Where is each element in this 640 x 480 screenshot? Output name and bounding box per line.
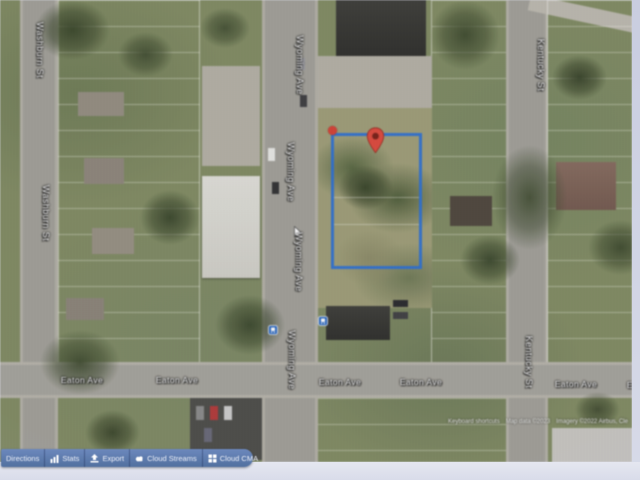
screen-photo: Washburn St Washburn St Wyoming Ave Wyom… [0,0,640,480]
bottom-toolbar: Directions Stats Export Cloud Streams Cl… [1,449,253,467]
street-label: Eaton Ave [400,377,442,387]
street-label: Wyoming Ave [294,232,304,291]
street-label: Washburn St [41,185,51,241]
street-label: Eaton Ave [156,375,198,385]
street-label: Washburn St [35,22,45,78]
cloud-streams-button[interactable]: Cloud Streams [129,449,202,467]
export-icon [90,454,99,463]
map-attribution: Keyboard shortcuts Map data ©2023 Imager… [448,419,632,425]
street-label: Eaton Ave [555,379,597,389]
location-pin-icon[interactable] [366,127,385,154]
transit-stop-icon[interactable] [318,313,328,323]
stats-button[interactable]: Stats [44,449,84,467]
street-label: Wyoming Ave [287,330,297,389]
cloud-cma-button[interactable]: Cloud CMA [202,449,263,467]
street-label: Wyoming Ave [286,142,296,201]
street-label: Eaton Ave [61,375,103,385]
cloud-streams-icon [135,454,144,463]
lot-line [334,197,419,198]
imagery-credit: Imagery ©2022 Airbus, Cle [556,419,628,425]
lot-line [334,224,419,225]
parcel-vertex-dot[interactable] [328,126,337,135]
directions-button-label: Directions [6,454,39,463]
street-label: Kentucky St [536,39,546,91]
street-label: Kentucky St [524,336,534,388]
street-label: Wyoming Ave [295,35,305,94]
cloud-streams-button-label: Cloud Streams [147,454,197,463]
street-label: Eaton Ave [319,377,361,387]
transit-stop-icon[interactable] [268,322,278,332]
screen-edge [632,0,640,480]
directions-button[interactable]: Directions [1,449,44,467]
export-button[interactable]: Export [84,449,129,467]
cloud-cma-icon [208,454,217,463]
map-data-link[interactable]: Map data ©2023 [506,419,550,425]
cloud-cma-button-label: Cloud CMA [220,454,258,463]
satellite-map[interactable]: Washburn St Washburn St Wyoming Ave Wyom… [0,0,632,462]
stats-button-label: Stats [62,454,79,463]
keyboard-shortcuts-link[interactable]: Keyboard shortcuts [448,419,500,425]
stats-icon [50,454,59,463]
export-button-label: Export [102,454,124,463]
